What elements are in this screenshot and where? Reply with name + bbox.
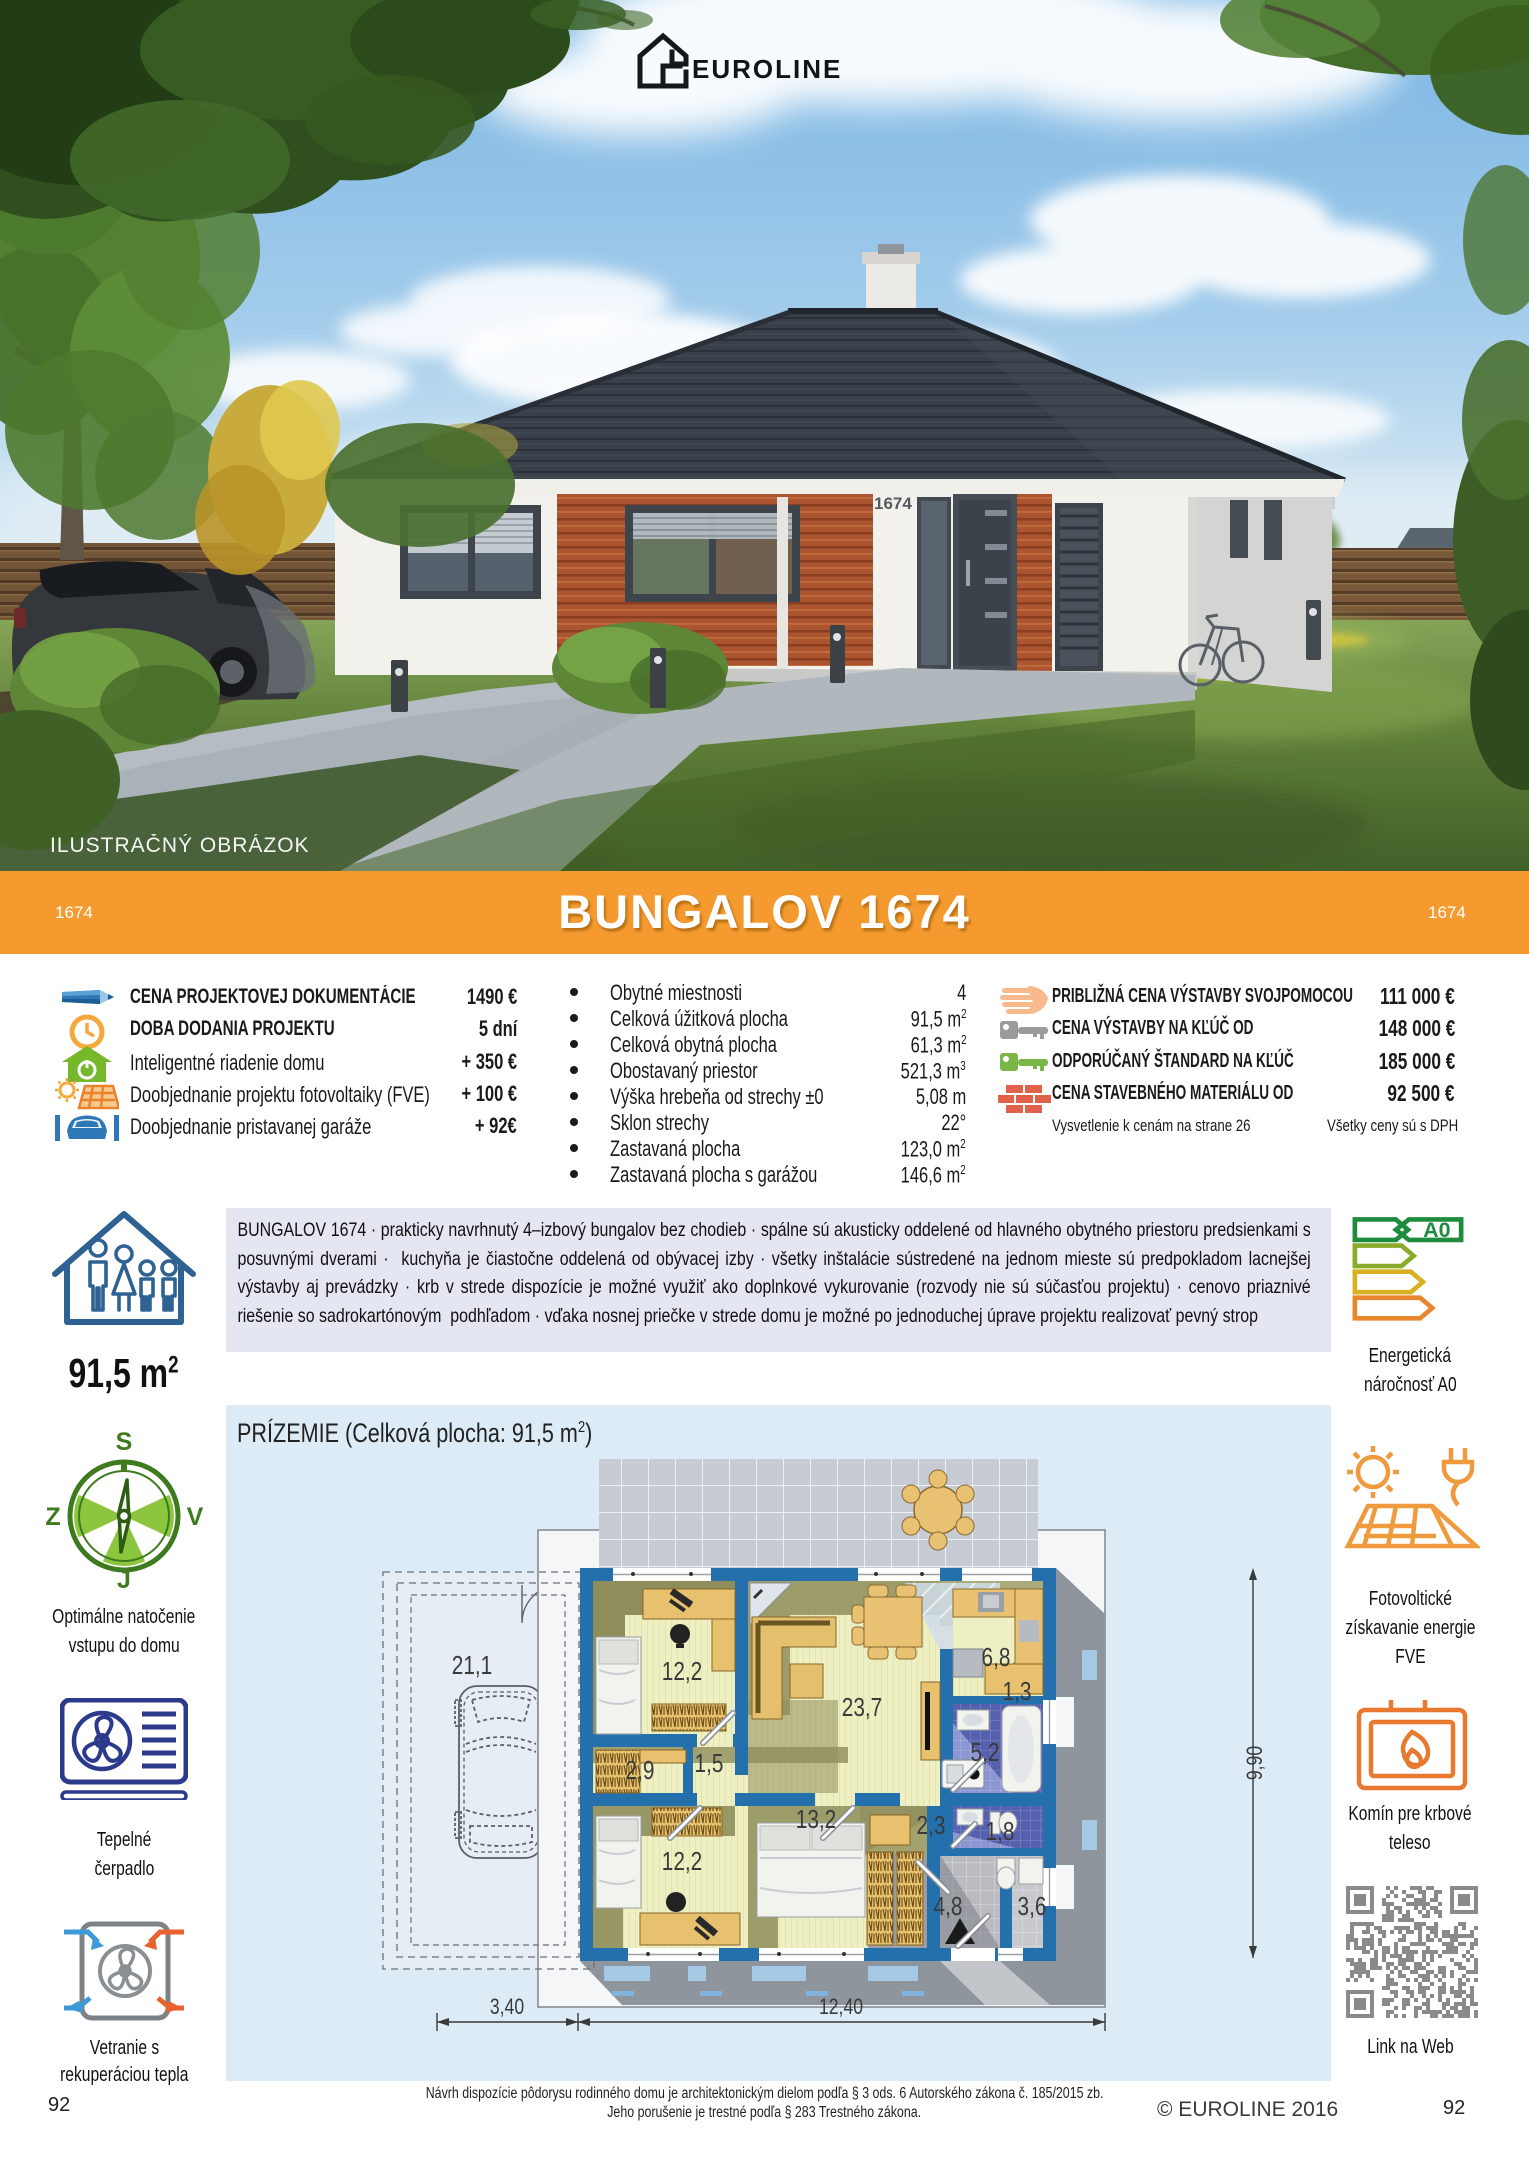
svg-text:J: J [117,1566,131,1592]
svg-text:Z: Z [45,1503,60,1531]
svg-text:12,2: 12,2 [662,1847,702,1876]
svg-text:4,8: 4,8 [934,1892,963,1921]
svg-text:S: S [116,1432,133,1456]
svg-text:1674: 1674 [874,494,912,513]
svg-text:3,40: 3,40 [490,1995,524,2019]
svg-text:1,8: 1,8 [986,1817,1015,1846]
svg-text:23,7: 23,7 [842,1693,882,1722]
svg-text:12,2: 12,2 [662,1657,702,1686]
svg-text:9,90: 9,90 [1243,1746,1267,1780]
svg-text:2,3: 2,3 [917,1811,946,1840]
svg-text:21,1: 21,1 [452,1651,492,1680]
svg-text:13,2: 13,2 [796,1805,836,1834]
svg-text:3,6: 3,6 [1018,1892,1047,1921]
svg-text:2,9: 2,9 [626,1756,655,1785]
svg-text:A0: A0 [1423,1218,1450,1242]
svg-text:1,3: 1,3 [1003,1677,1032,1706]
svg-text:12,40: 12,40 [819,1995,863,2019]
svg-text:ILUSTRAČNÝ OBRÁZOK: ILUSTRAČNÝ OBRÁZOK [50,834,310,857]
svg-text:EUROLINE: EUROLINE [692,54,842,84]
svg-text:V: V [187,1503,204,1531]
svg-text:1,5: 1,5 [695,1749,724,1778]
svg-text:6,8: 6,8 [982,1643,1011,1672]
svg-text:5,2: 5,2 [971,1738,1000,1767]
